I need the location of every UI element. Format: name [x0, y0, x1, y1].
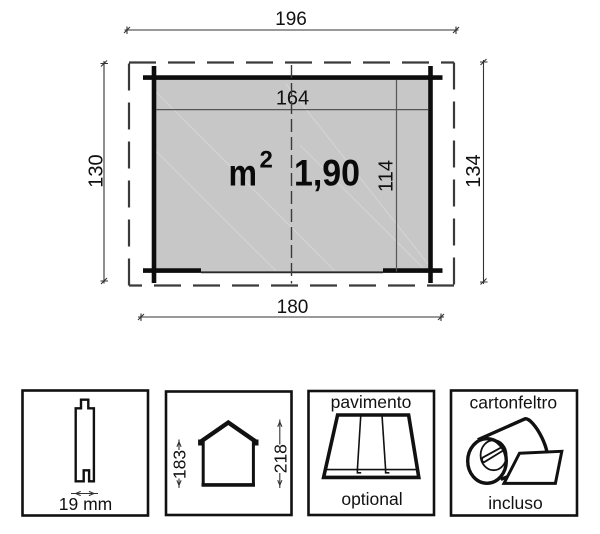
svg-text:incluso: incluso [488, 493, 542, 513]
svg-text:114: 114 [376, 160, 398, 192]
svg-text:m: m [229, 153, 258, 194]
svg-text:19 mm: 19 mm [59, 494, 112, 514]
svg-text:183: 183 [170, 450, 190, 479]
svg-text:1,90: 1,90 [294, 153, 360, 194]
svg-text:pavimento: pavimento [331, 392, 412, 412]
svg-text:218: 218 [270, 444, 290, 473]
svg-text:196: 196 [275, 9, 307, 30]
svg-text:2: 2 [260, 147, 273, 174]
svg-text:164: 164 [276, 88, 309, 110]
svg-text:130: 130 [86, 154, 108, 187]
svg-text:134: 134 [463, 154, 485, 187]
svg-text:180: 180 [277, 297, 309, 318]
svg-text:optional: optional [341, 489, 402, 509]
svg-text:cartonfeltro: cartonfeltro [470, 393, 558, 413]
